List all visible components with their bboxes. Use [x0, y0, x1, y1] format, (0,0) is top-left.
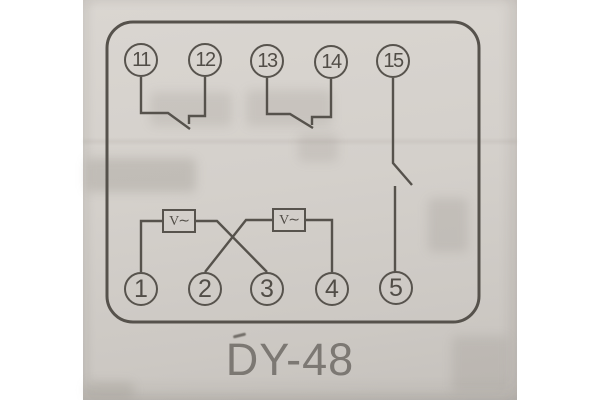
wire-voltmeter1-to-3 — [196, 221, 267, 272]
switch-15-blade — [393, 78, 412, 185]
terminal-14: 14 — [314, 45, 348, 79]
terminal-15: 15 — [376, 44, 410, 78]
wire-voltmeter2-to-4 — [306, 220, 332, 272]
wire-2-to-voltmeter2 — [205, 220, 272, 272]
terminal-12: 12 — [188, 43, 222, 77]
terminal-11: 11 — [124, 43, 158, 77]
wire-1-to-voltmeter1 — [141, 221, 162, 272]
page: 11 12 13 14 15 1 2 3 4 5 V∼ V∼ DY-48 — [0, 0, 600, 400]
voltage-element-1: V∼ — [162, 209, 196, 233]
terminal-1: 1 — [124, 272, 158, 306]
contact-11-moving-blade — [141, 77, 190, 129]
terminal-4: 4 — [315, 272, 349, 306]
voltage-element-2: V∼ — [272, 208, 306, 232]
contact-14-fixed-hook — [312, 79, 331, 125]
model-caption: DY-48 — [73, 334, 507, 386]
terminal-5: 5 — [379, 271, 413, 305]
terminal-3: 3 — [250, 272, 284, 306]
relay-case-outline — [107, 22, 479, 322]
terminal-13: 13 — [250, 44, 284, 78]
contact-13-moving-blade — [267, 78, 313, 128]
contact-12-fixed-hook — [189, 77, 205, 124]
terminal-2: 2 — [188, 272, 222, 306]
